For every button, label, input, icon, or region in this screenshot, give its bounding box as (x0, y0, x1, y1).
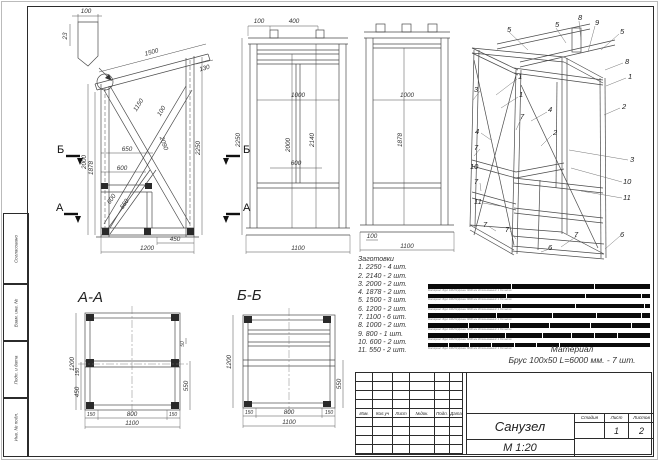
dim-text: 150 (169, 412, 178, 418)
dim-text: 150 (75, 368, 81, 377)
cut-bar-caption: Материал: Брус 100х50 Длина: 6000 мм Исп… (428, 338, 601, 341)
callout: 8 (625, 57, 630, 66)
revision-cell (450, 427, 463, 436)
dim-text: 550 (336, 378, 343, 389)
dim-text: 1200 (226, 355, 233, 370)
dim-text: 450 (74, 386, 81, 397)
title-block: Изм.Кол.учЛист№док.Подп.Дата Санузел М 1… (355, 372, 652, 455)
revision-header-cell: Кол.уч (373, 409, 393, 418)
revision-cell (393, 400, 410, 409)
revision-cell (393, 418, 410, 427)
revision-cell (356, 418, 373, 427)
revision-cell (410, 391, 435, 400)
cut-bar: Материал: Брус 100х50 Длина: 6000 мм Исп… (428, 313, 650, 321)
cut-bar-caption: Материал: Брус 100х50 Длина: 6000 мм Исп… (428, 289, 601, 292)
callout: 1 (518, 72, 522, 81)
blanks-item: 8. 1000 - 2 шт. (358, 322, 430, 330)
dim-text: 2000 (285, 138, 292, 154)
title-block-doc-title: Санузел (466, 413, 574, 440)
cut-segment (591, 323, 631, 328)
revision-cell (450, 373, 463, 382)
callout: 8 (578, 13, 583, 22)
revision-cell (373, 445, 393, 454)
dim-text: 2000 (81, 155, 88, 171)
dim-text: 1878 (397, 133, 404, 148)
callout: 9 (595, 18, 600, 27)
dim-text: 100 (254, 18, 265, 25)
cut-segment (576, 304, 644, 309)
drawing-sheet: Согласовано Взам. инв. № Подп. и дата Ин… (0, 0, 659, 461)
cut-segment (512, 284, 595, 289)
callout: 7 (483, 220, 488, 229)
sheet-value: 1 (605, 423, 629, 438)
blanks-item: 11. 550 - 2 шт. (358, 347, 430, 355)
dim-text: 100 (367, 233, 378, 240)
dim-text: 600 (117, 165, 128, 172)
cut-bar: Материал: Брус 100х50 Длина: 6000 мм Исп… (428, 323, 650, 331)
callout: 7 (474, 177, 479, 186)
revision-cell (373, 373, 393, 382)
revision-cell (450, 436, 463, 445)
cut-segment (572, 333, 594, 338)
revision-cell (373, 400, 393, 409)
callout: 1 (628, 72, 632, 81)
title-block-scale: М 1:20 (466, 439, 574, 456)
view-isometric (470, 21, 628, 259)
view-front-2 (360, 24, 454, 252)
cut-segment (642, 294, 650, 299)
blanks-item: 4. 1878 - 2 шт. (358, 289, 430, 297)
dim-text: 100 (81, 8, 92, 15)
dim-text: 450 (170, 236, 181, 243)
dim-text: 1200 (140, 245, 155, 252)
blanks-title: Заготовки (358, 256, 430, 264)
cut-segment (642, 313, 650, 318)
cut-bar-caption: Материал: Брус 100х50 Длина: 6000 мм Исп… (428, 318, 601, 321)
cut-bar: Материал: Брус 100х50 Длина: 6000 мм Исп… (428, 284, 650, 292)
callout: 5 (620, 27, 625, 36)
blanks-list: Заготовки 1. 2250 - 4 шт. 2. 2140 - 2 шт… (358, 256, 430, 356)
dim-text: 1000 (400, 92, 415, 99)
revision-header-cell: Дата (450, 409, 463, 418)
revision-cell (410, 427, 435, 436)
cut-segment (507, 294, 585, 299)
dim-text: 100 (156, 104, 168, 117)
callout: 2 (621, 102, 627, 111)
cut-segment (550, 323, 590, 328)
corner-detail (70, 14, 112, 81)
callout: 6 (620, 230, 625, 239)
dim-text: 1100 (291, 245, 305, 252)
revision-header-cell: Подп. (435, 409, 450, 418)
blanks-item: 9. 800 - 1 шт. (358, 331, 430, 339)
revision-header-cell: №док. (410, 409, 435, 418)
dim-text: 800 (284, 409, 295, 416)
revision-cell (373, 418, 393, 427)
callout: 10 (470, 162, 479, 171)
blanks-item: 10. 600 - 2 шт. (358, 339, 430, 347)
material-value: Брус 100х50 L=6000 мм. - 7 шт. (488, 355, 656, 366)
title-block-revision-table: Изм.Кол.учЛист№док.Подп.Дата (356, 373, 467, 454)
revision-cell (356, 400, 373, 409)
dim-text: 1500 (144, 47, 160, 58)
view-side-elevation (70, 14, 213, 254)
dim-text: 1150 (132, 97, 145, 113)
cut-bar-caption: Материал: Брус 100х50 Длина: 6000 мм Исп… (428, 328, 601, 331)
section-marker-a-right: А (243, 202, 251, 214)
dim-text: 600 (291, 160, 302, 167)
title-block-doc-number-cell (466, 373, 653, 414)
material-note: Материал Брус 100х50 L=6000 мм. - 7 шт. (488, 344, 656, 366)
revision-cell (450, 418, 463, 427)
dim-text: 50 (180, 341, 186, 347)
section-b-title: Б-Б (237, 287, 262, 304)
dim-text: 650 (122, 146, 133, 153)
callout: 7 (520, 112, 525, 121)
cut-segment (645, 304, 650, 309)
cutting-layout-bars: Материал: Брус 100х50 Длина: 6000 мм Исп… (428, 284, 650, 353)
dim-text: 1000 (291, 92, 306, 99)
cut-bar-caption: Материал: Брус 100х50 Длина: 6000 мм Исп… (428, 308, 601, 311)
callout: 7 (505, 225, 510, 234)
revision-cell (435, 436, 450, 445)
cut-segment (553, 313, 597, 318)
revision-cell (356, 391, 373, 400)
callout: 2 (552, 128, 558, 137)
callout: 11 (623, 193, 631, 202)
revision-cell (410, 445, 435, 454)
callout: 5 (555, 20, 560, 29)
revision-cell (393, 373, 410, 382)
dim-text: 150 (245, 410, 254, 416)
stage-label: Стадия (575, 413, 605, 422)
dim-text: 150 (87, 412, 96, 418)
dim-text: 800 (127, 411, 138, 418)
sheet-label: Лист (605, 413, 629, 422)
blanks-item: 1. 2250 - 4 шт. (358, 264, 430, 272)
dim-text: 130 (199, 64, 211, 74)
cut-segment (506, 333, 542, 338)
revision-cell (435, 373, 450, 382)
revision-cell (373, 427, 393, 436)
revision-cell (373, 436, 393, 445)
dim-text: 1100 (282, 419, 296, 426)
material-label: Материал (488, 344, 656, 355)
stage-value (575, 423, 605, 438)
callout: 11 (474, 197, 482, 206)
revision-cell (450, 400, 463, 409)
revision-cell (410, 382, 435, 391)
revision-cell (393, 445, 410, 454)
cut-segment (543, 333, 572, 338)
blanks-item: 6. 1200 - 2 шт. (358, 306, 430, 314)
dim-text: 1878 (88, 161, 95, 176)
blanks-item: 2. 2140 - 2 шт. (358, 273, 430, 281)
cut-segment (595, 284, 650, 289)
revision-cell (393, 382, 410, 391)
revision-cell (393, 391, 410, 400)
cut-segment (428, 284, 511, 289)
section-a-title: А-А (77, 289, 103, 306)
revision-cell (356, 373, 373, 382)
callout: 1 (519, 90, 523, 99)
dim-text: 150 (325, 410, 334, 416)
sheets-value: 2 (629, 423, 654, 438)
dim-text: 2250 (195, 141, 202, 157)
revision-cell (356, 436, 373, 445)
revision-cell (373, 391, 393, 400)
cut-segment (469, 333, 505, 338)
revision-cell (410, 373, 435, 382)
revision-cell (435, 391, 450, 400)
cut-bar: Материал: Брус 100х50 Длина: 6000 мм Исп… (428, 333, 650, 341)
title-block-sheet-table: Стадия Лист Листов 1 2 (574, 413, 654, 456)
revision-cell (435, 427, 450, 436)
callout: 10 (623, 177, 632, 186)
revision-cell (450, 445, 463, 454)
section-marker-a-left: А (56, 202, 64, 214)
section-marker-b-left: Б (57, 144, 64, 156)
revision-cell (435, 382, 450, 391)
callout: 7 (574, 230, 579, 239)
cut-bar-caption: Материал: Брус 100х50 Длина: 6000 мм Исп… (428, 298, 601, 301)
dim-text: 1100 (400, 243, 414, 250)
revision-header-cell: Изм. (356, 409, 373, 418)
callout: 6 (548, 243, 553, 252)
cut-bar: Материал: Брус 100х50 Длина: 6000 мм Исп… (428, 304, 650, 312)
callout: 4 (475, 127, 479, 136)
revision-cell (373, 382, 393, 391)
revision-cell (393, 436, 410, 445)
revision-cell (356, 427, 373, 436)
revision-cell (435, 418, 450, 427)
dim-text: 1100 (125, 420, 139, 427)
revision-cell (393, 427, 410, 436)
cut-segment (510, 323, 550, 328)
revision-header-cell: Лист (393, 409, 410, 418)
view-front-1 (242, 26, 350, 254)
callout: 4 (548, 105, 552, 114)
section-marker-b-right: Б (243, 144, 250, 156)
cut-segment (597, 313, 641, 318)
revision-cell (435, 400, 450, 409)
cut-segment (595, 333, 617, 338)
callout: 3 (630, 155, 635, 164)
dim-text: 550 (183, 380, 190, 391)
cut-bar: Материал: Брус 100х50 Длина: 6000 мм Исп… (428, 294, 650, 302)
revision-cell (450, 382, 463, 391)
cut-segment (618, 333, 650, 338)
cut-segment (428, 333, 468, 338)
revision-cell (356, 445, 373, 454)
cut-segment (632, 323, 650, 328)
revision-cell (410, 418, 435, 427)
dim-text: 2250 (235, 133, 242, 149)
revision-cell (435, 445, 450, 454)
blanks-item: 3. 2000 - 2 шт. (358, 281, 430, 289)
dim-text: 2140 (309, 133, 316, 149)
revision-cell (450, 391, 463, 400)
blanks-item: 5. 1500 - 3 шт. (358, 297, 430, 305)
sheets-label: Листов (629, 413, 654, 422)
dim-text: 400 (289, 18, 300, 25)
revision-cell (410, 400, 435, 409)
cut-segment (502, 304, 575, 309)
revision-cell (410, 436, 435, 445)
dim-text: 23 (62, 32, 69, 41)
dim-text: 2090 (157, 135, 169, 152)
callout: 7 (474, 143, 479, 152)
revision-cell (356, 382, 373, 391)
cut-segment (586, 294, 641, 299)
callout: 5 (507, 25, 512, 34)
blanks-item: 7. 1100 - 6 шт. (358, 314, 430, 322)
